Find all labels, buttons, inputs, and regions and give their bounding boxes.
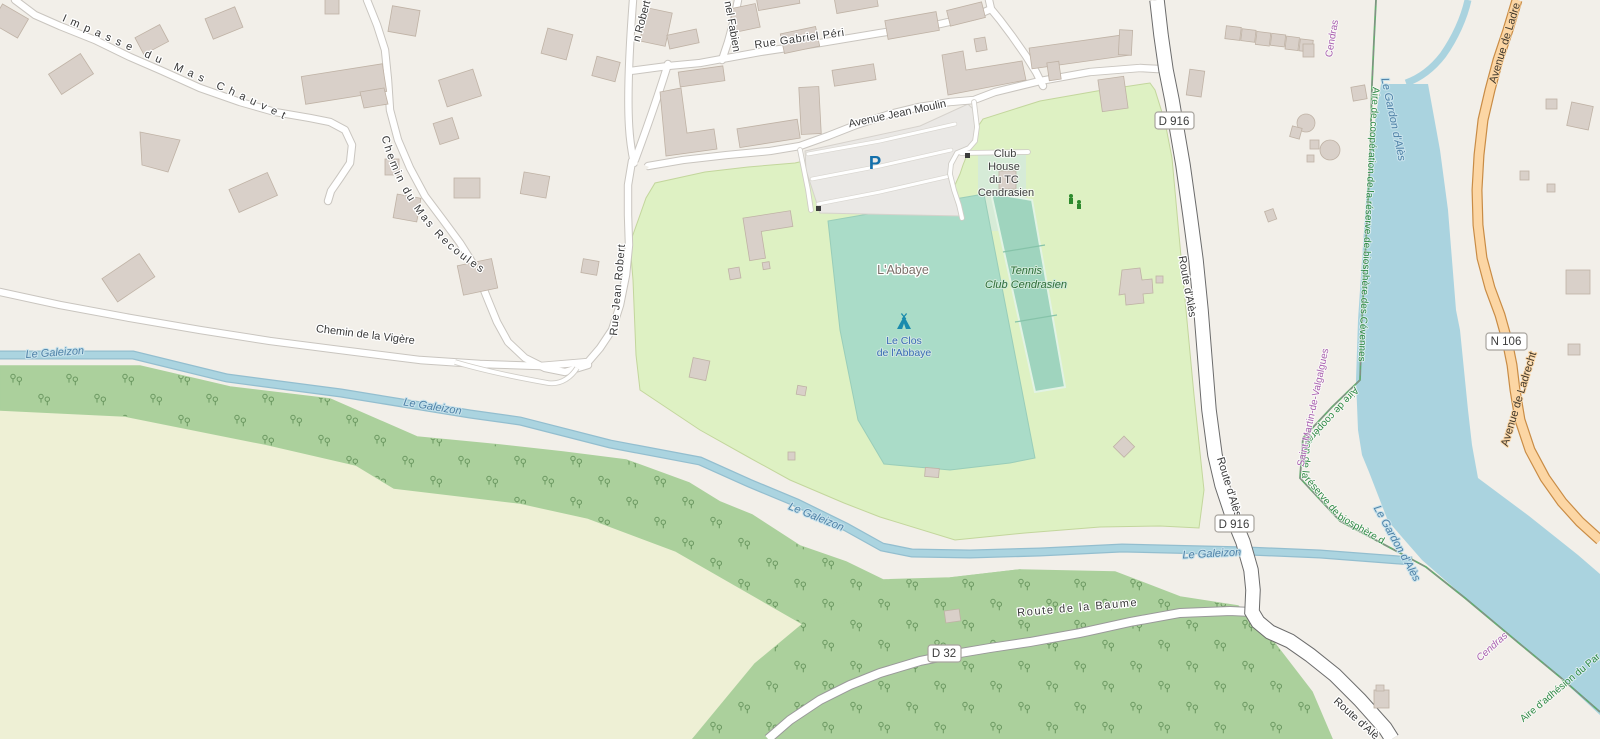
- svg-text:Club: Club: [994, 148, 1017, 160]
- svg-text:L'Abbaye: L'Abbaye: [877, 263, 929, 277]
- svg-text:Tennis: Tennis: [1010, 265, 1043, 277]
- svg-text:P: P: [869, 152, 881, 173]
- svg-text:Le Clos: Le Clos: [886, 335, 922, 347]
- svg-text:Club Cendrasien: Club Cendrasien: [985, 279, 1067, 291]
- svg-text:Cendrasien: Cendrasien: [978, 187, 1034, 199]
- svg-text:D 916: D 916: [1159, 116, 1190, 128]
- svg-text:D 32: D 32: [932, 648, 956, 660]
- svg-text:du TC: du TC: [989, 174, 1019, 186]
- svg-text:D 916: D 916: [1219, 519, 1250, 531]
- svg-text:House: House: [988, 161, 1020, 173]
- svg-text:de l'Abbaye: de l'Abbaye: [877, 347, 932, 359]
- svg-text:N 106: N 106: [1491, 336, 1522, 348]
